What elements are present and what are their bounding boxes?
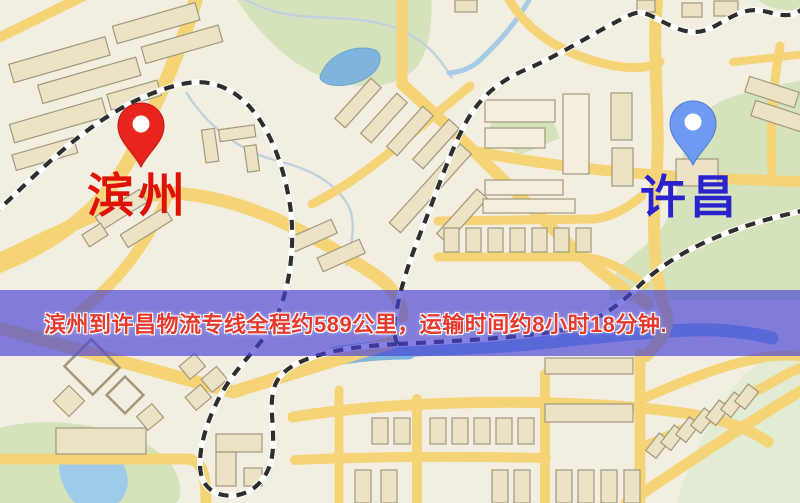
route-info-banner: 滨州到许昌物流专线全程约589公里，运输时间约8小时18分钟. [0, 290, 800, 356]
map-canvas[interactable]: 滨州 许昌 滨州到许昌物流专线全程约589公里，运输时间约8小时18分钟. [0, 0, 800, 503]
route-info-text: 滨州到许昌物流专线全程约589公里，运输时间约8小时18分钟. [44, 307, 667, 339]
map-image [0, 0, 800, 503]
